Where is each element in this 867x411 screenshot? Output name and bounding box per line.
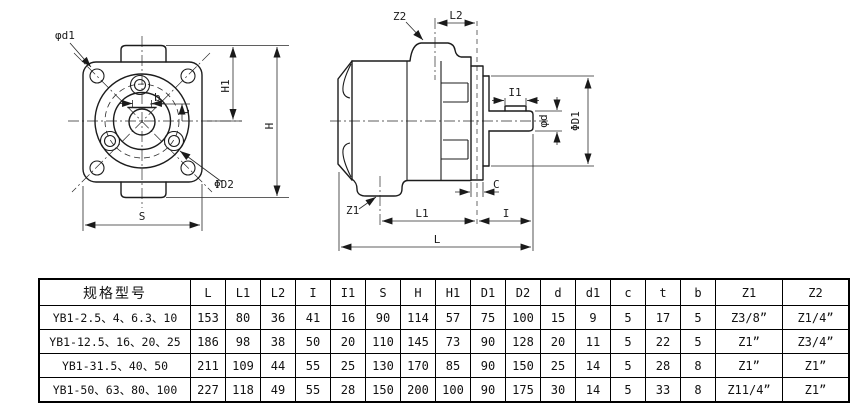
table-cell: 100 xyxy=(436,378,471,403)
table-cell: 55 xyxy=(296,354,331,378)
column-header: L xyxy=(191,279,226,306)
table-cell: 15 xyxy=(541,306,576,330)
table-cell: 16 xyxy=(331,306,366,330)
table-row: YB1-31.5、40、5021110944552513017085901502… xyxy=(39,354,849,378)
front-view-dimensions xyxy=(70,43,289,231)
dim-label-phi-d1: φd1 xyxy=(55,29,75,42)
mount-hole xyxy=(90,69,104,83)
table-cell: YB1-12.5、16、20、25 xyxy=(39,330,191,354)
table-cell: 128 xyxy=(506,330,541,354)
dim-label-t: t xyxy=(179,109,192,116)
table-cell: 114 xyxy=(401,306,436,330)
table-cell: 30 xyxy=(541,378,576,403)
table-row: YB1-12.5、16、20、2518698385020110145739012… xyxy=(39,330,849,354)
table-cell: YB1-2.5、4、6.3、10 xyxy=(39,306,191,330)
column-header: I xyxy=(296,279,331,306)
table-cell: 118 xyxy=(226,378,261,403)
column-header: c xyxy=(611,279,646,306)
spec-table-body: YB1-2.5、4、6.3、10153803641169011457751001… xyxy=(39,306,849,403)
mount-hole xyxy=(181,69,195,83)
table-cell: 22 xyxy=(646,330,681,354)
dim-label-phi-d: φd xyxy=(537,114,550,127)
column-header: D1 xyxy=(471,279,506,306)
table-cell: Z1” xyxy=(716,354,783,378)
table-cell: 130 xyxy=(366,354,401,378)
dim-label-l2: L2 xyxy=(449,9,462,22)
table-cell: 33 xyxy=(646,378,681,403)
table-cell: 14 xyxy=(576,378,611,403)
dim-label-i1: I1 xyxy=(508,86,521,99)
dim-label-s: S xyxy=(139,210,146,223)
table-cell: 186 xyxy=(191,330,226,354)
top-port-boss xyxy=(121,46,166,63)
table-cell: Z1/4” xyxy=(783,306,850,330)
shaft-key xyxy=(505,106,526,111)
table-cell: 55 xyxy=(296,378,331,403)
spec-table-head: 规格型号LL1L2II1SHH1D1D2dd1ctbZ1Z2 xyxy=(39,279,849,306)
dim-label-z1: Z1 xyxy=(346,204,359,217)
column-header: L1 xyxy=(226,279,261,306)
table-cell: 153 xyxy=(191,306,226,330)
dim-label-l1: L1 xyxy=(415,207,428,220)
table-cell: 98 xyxy=(226,330,261,354)
table-cell: 150 xyxy=(506,354,541,378)
column-header: d xyxy=(541,279,576,306)
column-header: D2 xyxy=(506,279,541,306)
pump-body-outline xyxy=(338,43,471,196)
spec-table-container: 规格型号LL1L2II1SHH1D1D2dd1ctbZ1Z2 YB1-2.5、4… xyxy=(38,278,830,403)
table-cell: 227 xyxy=(191,378,226,403)
table-cell: 90 xyxy=(471,378,506,403)
dim-label-i: I xyxy=(503,207,510,220)
table-cell: 28 xyxy=(331,378,366,403)
table-cell: Z1” xyxy=(783,378,850,403)
column-header: t xyxy=(646,279,681,306)
table-cell: 50 xyxy=(296,330,331,354)
table-cell: 90 xyxy=(471,354,506,378)
column-header: L2 xyxy=(261,279,296,306)
table-cell: 170 xyxy=(401,354,436,378)
technical-drawing: φd1 b t H1 H S ΦD2 xyxy=(0,0,867,272)
column-header: S xyxy=(366,279,401,306)
column-header: I1 xyxy=(331,279,366,306)
table-cell: 38 xyxy=(261,330,296,354)
column-header: H xyxy=(401,279,436,306)
table-cell: 5 xyxy=(611,330,646,354)
header-row: 规格型号LL1L2II1SHH1D1D2dd1ctbZ1Z2 xyxy=(39,279,849,306)
table-cell: YB1-31.5、40、50 xyxy=(39,354,191,378)
dim-label-phi-d2: ΦD2 xyxy=(214,178,234,191)
table-cell: 28 xyxy=(646,354,681,378)
dim-label-b: b xyxy=(154,91,161,104)
table-cell: 5 xyxy=(681,306,716,330)
table-cell: 44 xyxy=(261,354,296,378)
table-cell: 110 xyxy=(366,330,401,354)
engineering-drawing-sheet: φd1 b t H1 H S ΦD2 xyxy=(0,0,867,411)
column-header: Z1 xyxy=(716,279,783,306)
table-cell: 90 xyxy=(366,306,401,330)
dim-label-z2: Z2 xyxy=(393,10,406,23)
column-header: 规格型号 xyxy=(39,279,191,306)
table-row: YB1-50、63、80、100227118495528150200100901… xyxy=(39,378,849,403)
table-cell: 57 xyxy=(436,306,471,330)
column-header: b xyxy=(681,279,716,306)
table-cell: 8 xyxy=(681,354,716,378)
table-cell: 200 xyxy=(401,378,436,403)
dim-label-h: H xyxy=(263,123,276,130)
table-cell: 25 xyxy=(331,354,366,378)
table-cell: 20 xyxy=(541,330,576,354)
spec-table: 规格型号LL1L2II1SHH1D1D2dd1ctbZ1Z2 YB1-2.5、4… xyxy=(38,278,850,403)
table-cell: 100 xyxy=(506,306,541,330)
table-cell: Z3/4” xyxy=(783,330,850,354)
mount-hole xyxy=(90,161,104,175)
table-cell: 90 xyxy=(471,330,506,354)
column-header: Z2 xyxy=(783,279,850,306)
table-cell: 5 xyxy=(611,306,646,330)
table-cell: 175 xyxy=(506,378,541,403)
table-cell: 73 xyxy=(436,330,471,354)
table-cell: 20 xyxy=(331,330,366,354)
table-cell: 17 xyxy=(646,306,681,330)
dim-label-h1: H1 xyxy=(219,79,232,92)
column-header: H1 xyxy=(436,279,471,306)
table-cell: 109 xyxy=(226,354,261,378)
dim-label-phi-d1-pilot: ΦD1 xyxy=(569,111,582,131)
table-cell: 36 xyxy=(261,306,296,330)
table-cell: 11 xyxy=(576,330,611,354)
table-cell: 14 xyxy=(576,354,611,378)
table-cell: Z11/4” xyxy=(716,378,783,403)
table-cell: 8 xyxy=(681,378,716,403)
table-cell: 5 xyxy=(611,354,646,378)
table-cell: 80 xyxy=(226,306,261,330)
table-cell: 5 xyxy=(611,378,646,403)
table-cell: 150 xyxy=(366,378,401,403)
table-cell: Z3/8” xyxy=(716,306,783,330)
dim-label-l: L xyxy=(434,233,441,246)
bottom-port-boss xyxy=(121,182,166,198)
front-view: φd1 b t H1 H S ΦD2 xyxy=(55,29,289,231)
table-cell: 5 xyxy=(681,330,716,354)
table-cell: YB1-50、63、80、100 xyxy=(39,378,191,403)
table-cell: 145 xyxy=(401,330,436,354)
table-cell: Z1” xyxy=(716,330,783,354)
table-cell: Z1” xyxy=(783,354,850,378)
table-cell: 75 xyxy=(471,306,506,330)
table-cell: 9 xyxy=(576,306,611,330)
dim-label-c: C xyxy=(493,178,500,191)
table-cell: 25 xyxy=(541,354,576,378)
column-header: d1 xyxy=(576,279,611,306)
table-cell: 41 xyxy=(296,306,331,330)
table-row: YB1-2.5、4、6.3、10153803641169011457751001… xyxy=(39,306,849,330)
table-cell: 211 xyxy=(191,354,226,378)
side-view: Z2 L2 I1 φd ΦD1 C Z1 L1 I L xyxy=(330,9,594,251)
table-cell: 49 xyxy=(261,378,296,403)
table-cell: 85 xyxy=(436,354,471,378)
